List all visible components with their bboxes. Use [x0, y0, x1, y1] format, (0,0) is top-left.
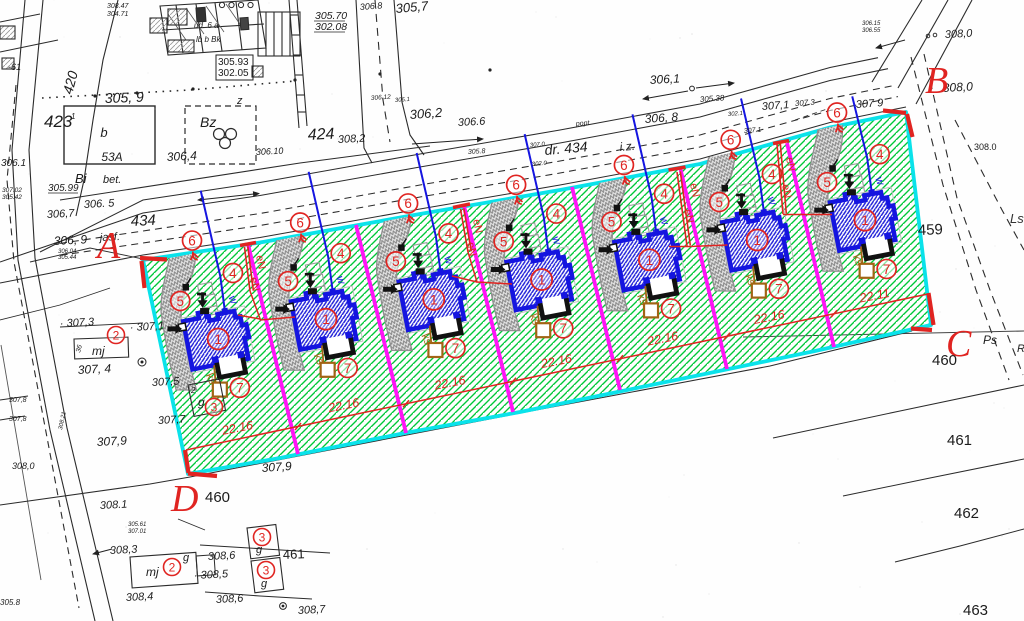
svg-text:3: 3 [263, 563, 270, 577]
svg-text:307,1: 307,1 [761, 99, 789, 113]
svg-text:308,0: 308,0 [12, 461, 35, 471]
svg-text:306.6: 306.6 [458, 116, 487, 129]
svg-text:Bz: Bz [200, 114, 216, 130]
svg-text:7: 7 [775, 282, 783, 297]
svg-text:1: 1 [861, 212, 869, 228]
svg-text:302.08: 302.08 [315, 21, 347, 33]
svg-text:302.05: 302.05 [218, 68, 249, 79]
svg-text:306, 8: 306, 8 [644, 110, 679, 126]
svg-text:53A: 53A [101, 150, 122, 164]
svg-text:306.12: 306.12 [371, 94, 392, 102]
svg-text:307,8: 307,8 [9, 416, 27, 423]
svg-text:5: 5 [716, 195, 724, 210]
svg-text:308.0: 308.0 [974, 142, 997, 152]
svg-text:5: 5 [608, 215, 616, 230]
svg-text:434: 434 [130, 212, 156, 230]
svg-text:6: 6 [188, 233, 196, 248]
svg-text:460: 460 [205, 489, 230, 506]
svg-text:307.1: 307.1 [744, 127, 762, 135]
svg-text:308,7: 308,7 [298, 604, 327, 617]
svg-text:3: 3 [211, 400, 218, 414]
svg-text:1: 1 [538, 272, 546, 288]
svg-text:1: 1 [645, 252, 653, 268]
svg-text:D: D [170, 478, 198, 520]
svg-text:306,4: 306,4 [166, 148, 197, 164]
svg-text:308.1: 308.1 [100, 499, 128, 512]
svg-text:305, 9: 305, 9 [105, 89, 145, 106]
svg-text:306.8: 306.8 [359, 0, 382, 12]
svg-text:5: 5 [392, 254, 400, 269]
svg-text:6: 6 [620, 158, 628, 173]
svg-text:306,7: 306,7 [47, 208, 76, 221]
svg-text:mj: mj [146, 565, 159, 579]
svg-text:305.42: 305.42 [2, 194, 22, 201]
svg-text:g: g [261, 578, 268, 590]
svg-text:7: 7 [667, 301, 675, 316]
svg-text:461: 461 [947, 432, 972, 449]
svg-text:bet.: bet. [103, 174, 121, 186]
svg-text:· 307,3: · 307,3 [60, 316, 96, 330]
svg-text:308.47: 308.47 [107, 3, 130, 10]
svg-text:308,2: 308,2 [338, 133, 366, 146]
svg-text:305.93: 305.93 [218, 57, 249, 68]
svg-text:307,5: 307,5 [152, 376, 181, 389]
svg-text:462: 462 [954, 505, 979, 522]
svg-text:z: z [236, 95, 243, 107]
svg-text:i.z.: i.z. [619, 139, 636, 154]
svg-text:popt: popt [575, 120, 591, 128]
svg-text:4: 4 [768, 167, 776, 182]
svg-text:5: 5 [500, 234, 508, 249]
svg-text:1: 1 [322, 311, 330, 327]
svg-text:306,1: 306,1 [649, 71, 680, 87]
svg-text:5: 5 [177, 294, 185, 309]
svg-text:4: 4 [337, 246, 345, 261]
svg-text:5: 5 [284, 274, 292, 289]
svg-text:4: 4 [876, 147, 884, 162]
svg-text:307,9: 307,9 [96, 433, 127, 449]
svg-text:· 307,1: · 307,1 [130, 320, 165, 334]
svg-text:305.8: 305.8 [0, 598, 21, 607]
svg-text:2: 2 [113, 328, 120, 342]
svg-text:308,6: 308,6 [216, 593, 245, 606]
svg-text:6: 6 [512, 178, 520, 193]
svg-text:R: R [1017, 343, 1024, 355]
svg-text:A: A [94, 225, 121, 267]
svg-text:7: 7 [883, 262, 891, 277]
svg-text:4: 4 [553, 206, 561, 221]
svg-text:-61: -61 [8, 62, 21, 72]
svg-text:Bi: Bi [75, 171, 88, 186]
svg-text:307, 4: 307, 4 [77, 361, 111, 377]
svg-text:306.55: 306.55 [862, 28, 881, 34]
svg-text:308,6: 308,6 [208, 550, 237, 563]
svg-text:306.10: 306.10 [256, 146, 284, 157]
svg-text:7: 7 [559, 321, 567, 336]
svg-text:3: 3 [259, 530, 266, 544]
svg-text:1: 1 [214, 331, 222, 347]
svg-text:ud. 6 a: ud. 6 a [194, 21, 219, 30]
svg-text:7: 7 [236, 381, 244, 396]
svg-text:Ps: Ps [983, 333, 997, 347]
svg-text:305.38: 305.38 [700, 93, 726, 104]
svg-text:6: 6 [727, 133, 735, 148]
svg-text:307.02: 307.02 [2, 187, 22, 194]
svg-text:304.71: 304.71 [107, 11, 129, 18]
svg-text:4: 4 [229, 266, 237, 281]
svg-text:mj: mj [92, 344, 105, 358]
svg-text:307 9: 307 9 [855, 97, 883, 111]
svg-text:423: 423 [44, 112, 73, 131]
svg-text:1: 1 [430, 291, 438, 307]
svg-text:308,0: 308,0 [945, 28, 974, 41]
svg-text:307.01: 307.01 [128, 529, 146, 535]
svg-text:305.44: 305.44 [58, 255, 77, 261]
svg-text:2: 2 [169, 560, 176, 574]
svg-text:307,7: 307,7 [158, 414, 187, 427]
svg-text:Ls: Ls [1010, 211, 1024, 226]
svg-text:460: 460 [932, 352, 957, 369]
svg-text:463: 463 [963, 602, 988, 619]
svg-text:306,2: 306,2 [409, 105, 443, 122]
svg-text:1: 1 [71, 112, 75, 121]
svg-text:7: 7 [452, 341, 460, 356]
svg-text:305.8: 305.8 [468, 148, 486, 156]
svg-text:302.1: 302.1 [728, 111, 743, 118]
svg-text:306, 9: 306, 9 [53, 232, 87, 248]
svg-text:4: 4 [660, 187, 668, 202]
svg-text:B: B [925, 60, 948, 102]
svg-text:306.15: 306.15 [862, 21, 881, 27]
svg-text:307,8: 307,8 [9, 397, 27, 404]
svg-text:306. 5: 306. 5 [84, 197, 116, 211]
svg-text:6: 6 [296, 215, 304, 230]
svg-text:461: 461 [283, 546, 305, 562]
svg-text:7: 7 [344, 361, 352, 376]
svg-text:6: 6 [833, 105, 841, 120]
svg-text:308,4: 308,4 [126, 591, 154, 604]
svg-text:g: g [198, 395, 205, 409]
svg-text:305.61: 305.61 [128, 522, 146, 528]
svg-text:b: b [100, 125, 107, 140]
svg-text:g: g [183, 552, 190, 564]
svg-text:4: 4 [445, 226, 453, 241]
svg-text:lb b Bk: lb b Bk [196, 35, 221, 44]
svg-text:5: 5 [823, 175, 831, 190]
svg-text:308,3: 308,3 [110, 544, 139, 557]
svg-text:424: 424 [307, 126, 335, 144]
svg-text:307.3: 307.3 [795, 98, 816, 108]
svg-text:459: 459 [918, 221, 944, 239]
svg-text:306.1: 306.1 [1, 158, 26, 169]
svg-text:1: 1 [753, 232, 761, 248]
svg-text:307,9: 307,9 [261, 459, 292, 475]
svg-text:306.1: 306.1 [395, 97, 410, 104]
svg-text:6: 6 [404, 196, 412, 211]
svg-text:2: 2 [190, 386, 196, 395]
